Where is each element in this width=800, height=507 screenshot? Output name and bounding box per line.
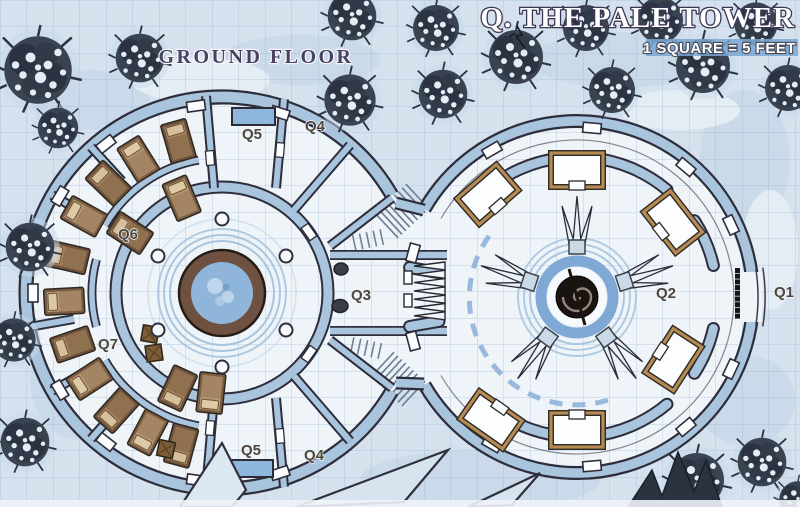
- room-label-q3: Q3: [351, 287, 371, 304]
- pillar-icon: [280, 250, 293, 263]
- room-label-q4-top: Q4: [305, 118, 326, 135]
- east-gate-bars: [735, 268, 740, 319]
- window: [186, 100, 205, 112]
- map-title: Q. THE PALE TOWER: [480, 2, 795, 34]
- room-label-q6: Q6: [118, 226, 138, 243]
- room-label-q5-bottom: Q5: [241, 442, 261, 459]
- map-canvas: Q1 Q2 Q3 Q4 Q5 Q4 Q5 Q6 Q7 Q. THE PALE T…: [0, 0, 800, 507]
- table-frame-icon: [551, 153, 603, 190]
- bottom-edge: [0, 500, 800, 507]
- door: [275, 142, 284, 157]
- pillar-icon: [152, 324, 165, 337]
- room-label-q2: Q2: [656, 285, 676, 302]
- table-frame-icon: [551, 410, 603, 447]
- pillar-icon: [152, 250, 165, 263]
- door: [275, 428, 284, 443]
- bed-icon: [44, 287, 85, 315]
- pale-tower-map: Q1 Q2 Q3 Q4 Q5 Q4 Q5 Q6 Q7 Q. THE PALE T…: [0, 0, 800, 507]
- pillar-icon: [216, 361, 229, 374]
- window: [28, 284, 38, 302]
- window: [583, 122, 602, 134]
- bed-icon: [196, 372, 226, 414]
- crate-icon: [145, 344, 163, 362]
- crate-icon: [157, 440, 176, 459]
- door: [205, 420, 214, 435]
- rock-icon: [332, 300, 348, 313]
- room-label-q7: Q7: [98, 336, 118, 353]
- window: [583, 460, 602, 472]
- blue-bed-icon: [232, 108, 275, 125]
- room-label-q5-top: Q5: [242, 126, 262, 143]
- rock-icon: [334, 263, 348, 275]
- door: [205, 150, 214, 165]
- pillar-icon: [216, 213, 229, 226]
- scale-label: 1 SQUARE = 5 FEET: [643, 40, 796, 57]
- floor-label: GROUND FLOOR: [159, 46, 354, 68]
- room-label-q1: Q1: [774, 284, 794, 301]
- pool-water: [191, 262, 253, 324]
- pillar-icon: [280, 324, 293, 337]
- room-label-q4-bottom: Q4: [304, 447, 325, 464]
